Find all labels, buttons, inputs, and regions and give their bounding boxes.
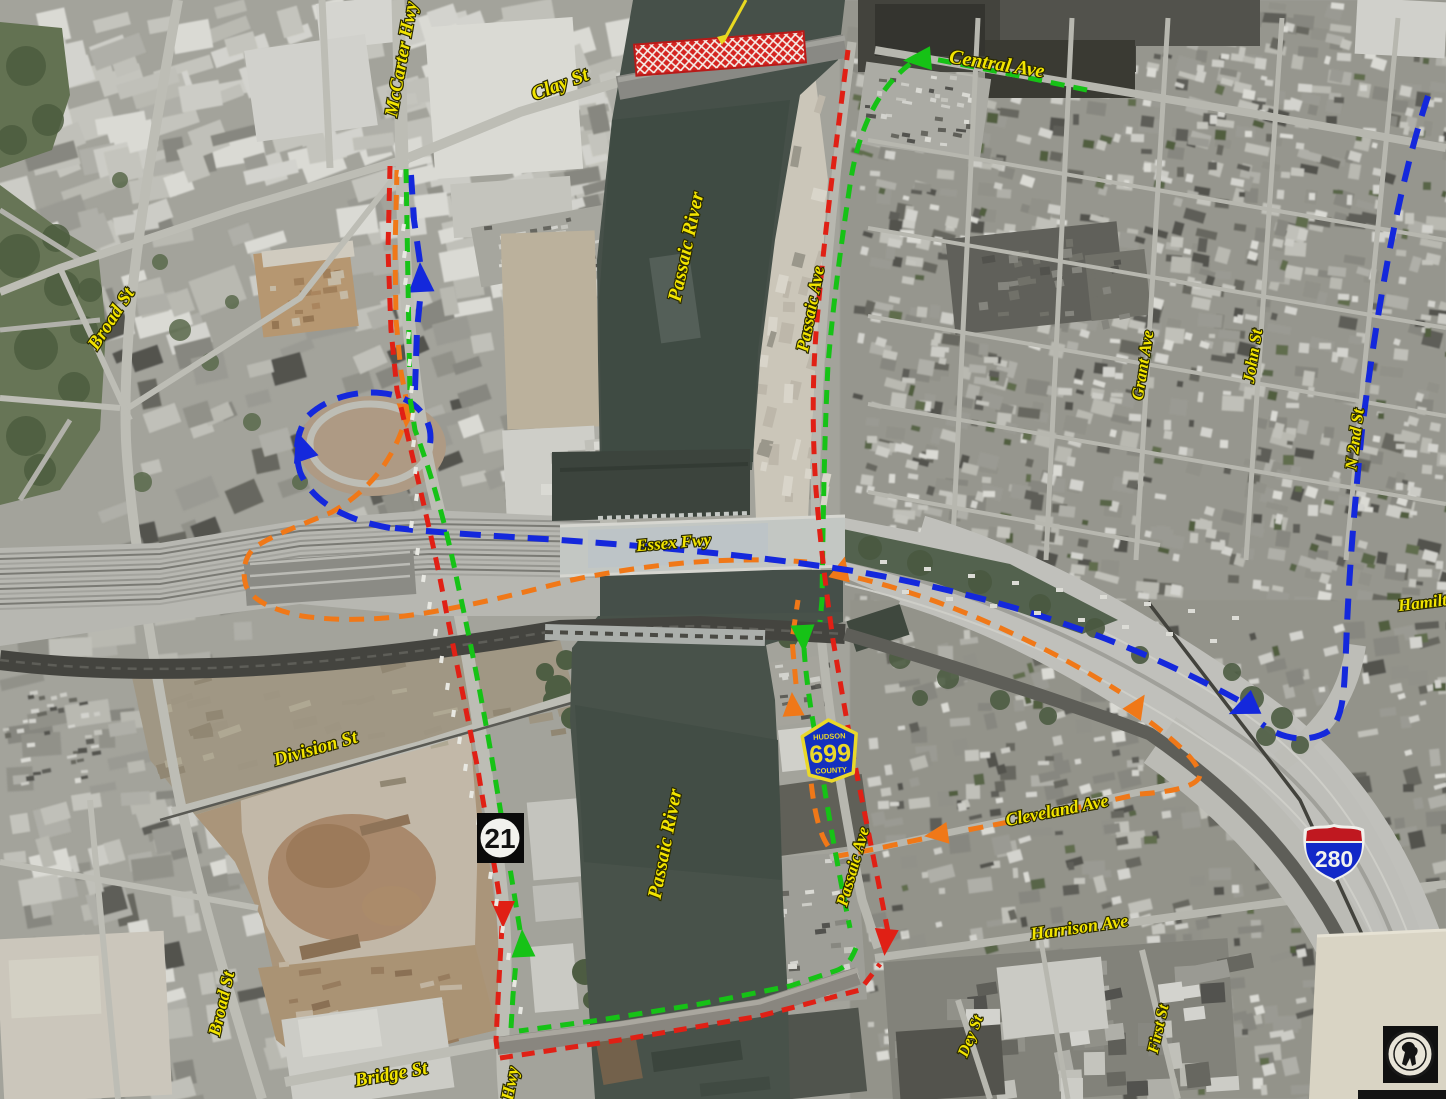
svg-text:COUNTY: COUNTY [815, 765, 847, 776]
svg-text:280: 280 [1315, 846, 1353, 872]
svg-text:21: 21 [484, 823, 515, 854]
